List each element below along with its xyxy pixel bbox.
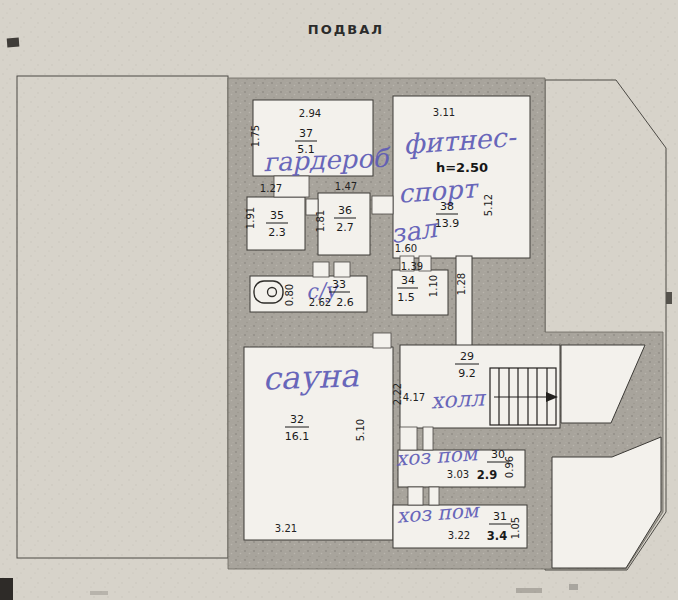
door-opening-sauna — [373, 333, 391, 348]
room-31-dim-width: 3.22 — [448, 530, 470, 541]
room-36-dim-height: 1.81 — [315, 210, 326, 232]
corridor-dim: 1.28 — [456, 273, 467, 295]
floorplan-svg: ПОДВАЛ — [0, 0, 678, 600]
floorplan-scan: ПОДВАЛ — [0, 0, 678, 600]
room-38-ceiling-height: h=2.50 — [436, 160, 488, 175]
room-29-number: 29 — [460, 350, 474, 363]
room-33-dim-height: 0.80 — [284, 284, 295, 306]
room-32-number: 32 — [290, 413, 304, 426]
door-opening-r33-right — [334, 262, 350, 277]
room-38-area: 13.9 — [435, 217, 460, 230]
room-38-number: 38 — [440, 200, 454, 213]
room-30-dim-height: 0.96 — [504, 456, 515, 478]
room-33-number: 33 — [332, 278, 346, 291]
room-29-dim-height: 2.22 — [392, 383, 403, 405]
room-32-area: 16.1 — [285, 430, 310, 443]
room-30-area: 2.9 — [477, 468, 497, 482]
room-33-dim-bottom: 2.62 — [309, 297, 331, 308]
room-34-dim-height: 1.10 — [428, 275, 439, 297]
room-38-handwritten-label-2: спорт — [397, 173, 480, 209]
room-31-dim-height: 1.05 — [510, 517, 521, 539]
door-opening-r33-left — [313, 262, 329, 277]
room-31-area: 3.4 — [487, 529, 507, 543]
room-38-dim-width: 3.11 — [433, 107, 455, 118]
room-38-dim-height: 5.12 — [483, 194, 494, 216]
room-35-dim-height: 1.91 — [245, 207, 256, 229]
room-30-number: 30 — [491, 448, 505, 461]
room-31-number: 31 — [493, 510, 507, 523]
room-34-dim-width: 1.39 — [401, 261, 423, 272]
room-37-handwritten-label: гардероб — [263, 143, 392, 177]
room-34-number: 34 — [401, 274, 415, 287]
room-36-area: 2.7 — [336, 221, 354, 234]
room-29-handwritten-label: холл — [430, 385, 488, 413]
room-34-area: 1.5 — [397, 291, 415, 304]
room-37-number: 37 — [299, 127, 313, 140]
room-36-number: 36 — [338, 204, 352, 217]
door-opening-r36-fitness — [372, 196, 393, 214]
room-35-dim-width: 1.27 — [260, 183, 282, 194]
room-35-area: 2.3 — [268, 226, 286, 239]
room-33-area: 2.6 — [336, 296, 354, 309]
room-29-dim-width: 4.17 — [403, 392, 425, 403]
room-37-dim-height: 1.75 — [250, 125, 261, 147]
room-37-dim-width: 2.94 — [299, 108, 321, 119]
room-32-dim-height: 5.10 — [355, 419, 366, 441]
room-32-dim-bottom: 3.21 — [275, 523, 297, 534]
room-30-dim-width: 3.03 — [447, 469, 469, 480]
room-32-handwritten-label: сауна — [262, 356, 360, 397]
room-29-area: 9.2 — [458, 367, 476, 380]
corridor-strip — [456, 256, 472, 347]
room-35-number: 35 — [270, 209, 284, 222]
plan-title: ПОДВАЛ — [308, 22, 384, 37]
room-38-dim-bottom: 1.60 — [395, 243, 417, 254]
room-36-dim-width: 1.47 — [335, 181, 357, 192]
toilet-icon — [254, 281, 283, 303]
